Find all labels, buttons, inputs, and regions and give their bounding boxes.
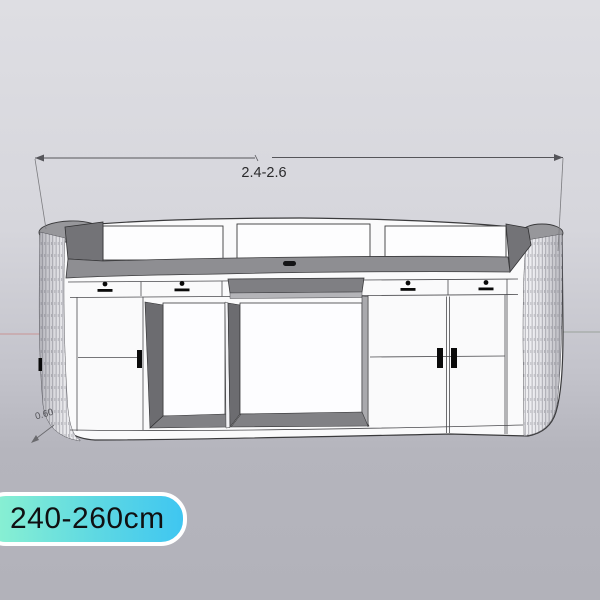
open-shelf-left (145, 302, 227, 428)
door-handle (451, 348, 457, 368)
door-handle (137, 350, 142, 368)
cable-grommet-icon (283, 261, 296, 266)
dimension-arrow-right (554, 154, 563, 161)
keyboard-tray (228, 278, 364, 299)
door-handle (437, 348, 443, 368)
shelf-divider (225, 302, 240, 428)
right-end-cap (523, 234, 562, 436)
width-dimension-label: 2.4-2.6 (241, 165, 286, 181)
dimension-tick (255, 155, 258, 161)
depth-dimension-arrow (31, 435, 39, 443)
riser-back-panel-3 (385, 226, 506, 258)
width-extension-left (35, 159, 46, 229)
dimension-arrow-left (35, 155, 44, 162)
size-badge: 240-260cm (0, 492, 187, 546)
riser-back-panel-1 (103, 226, 223, 260)
open-shelf-center (231, 296, 369, 427)
size-badge-label: 240-260cm (10, 502, 165, 536)
door-handle (39, 358, 43, 371)
riser-end-face-left (65, 222, 103, 261)
